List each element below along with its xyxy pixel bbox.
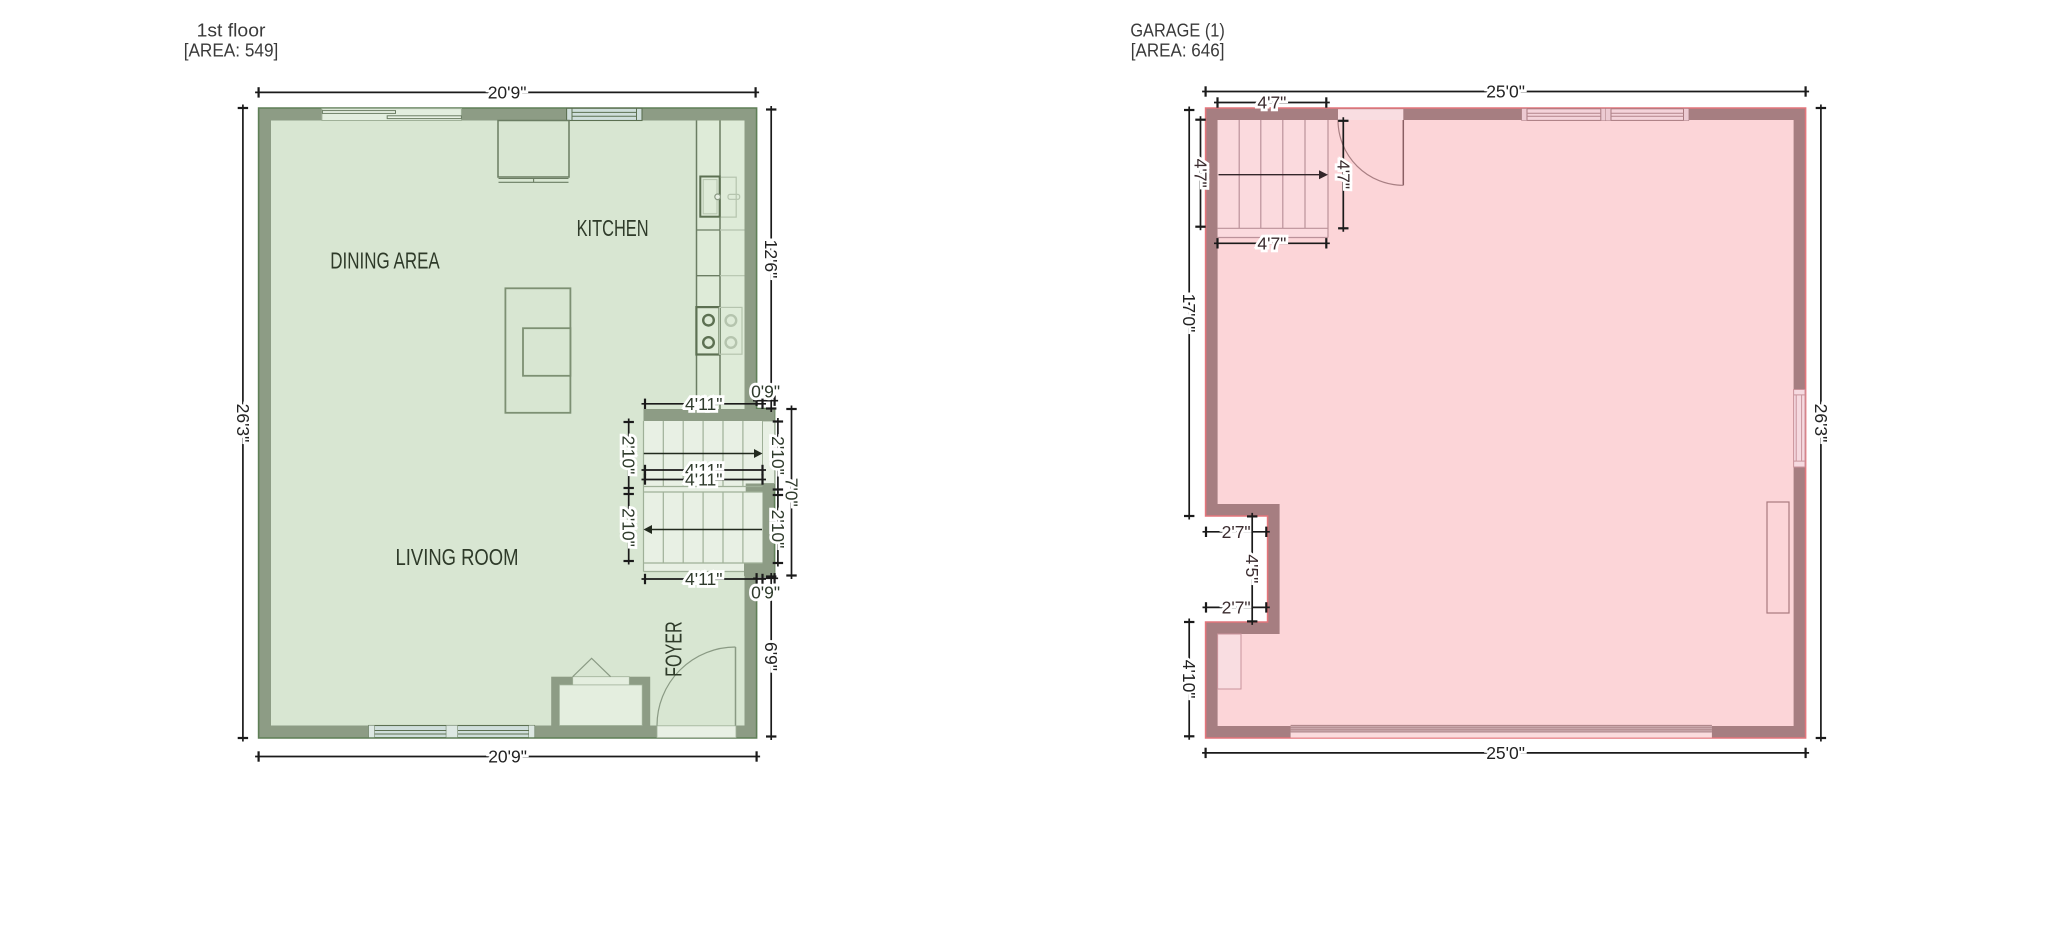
- svg-text:17'0": 17'0": [1179, 294, 1199, 333]
- svg-text:2'10": 2'10": [619, 436, 639, 475]
- svg-text:20'9": 20'9": [488, 747, 527, 767]
- svg-text:25'0": 25'0": [1486, 743, 1525, 763]
- svg-text:12'6": 12'6": [761, 240, 781, 279]
- svg-text:7'0": 7'0": [782, 478, 802, 507]
- svg-text:1st floor: 1st floor: [197, 21, 266, 41]
- svg-text:2'7": 2'7": [1222, 522, 1251, 542]
- svg-text:4'7": 4'7": [1333, 160, 1353, 189]
- svg-text:4'11": 4'11": [685, 470, 722, 490]
- svg-text:25'0": 25'0": [1486, 82, 1525, 102]
- svg-text:LIVING ROOM: LIVING ROOM: [396, 544, 519, 570]
- svg-text:2'10": 2'10": [768, 436, 788, 475]
- svg-text:4'5": 4'5": [1242, 554, 1262, 583]
- svg-text:4'7": 4'7": [1257, 93, 1286, 113]
- svg-text:KITCHEN: KITCHEN: [577, 215, 649, 241]
- svg-text:GARAGE (1): GARAGE (1): [1130, 21, 1225, 41]
- svg-text:4'11": 4'11": [685, 569, 722, 589]
- svg-text:6'9": 6'9": [761, 642, 781, 671]
- svg-text:4'10": 4'10": [1179, 660, 1199, 699]
- svg-text:4'7": 4'7": [1257, 233, 1286, 253]
- svg-text:2'10": 2'10": [768, 510, 788, 549]
- svg-text:26'3": 26'3": [233, 404, 253, 443]
- svg-text:2'7": 2'7": [1222, 597, 1251, 617]
- svg-text:FOYER: FOYER: [660, 621, 686, 677]
- svg-text:26'3": 26'3": [1811, 404, 1831, 443]
- svg-text:[AREA: 549]: [AREA: 549]: [184, 40, 279, 60]
- svg-text:0'9": 0'9": [751, 583, 780, 603]
- svg-text:[AREA: 646]: [AREA: 646]: [1131, 40, 1225, 60]
- svg-text:20'9": 20'9": [488, 82, 527, 102]
- svg-text:0'9": 0'9": [751, 381, 780, 401]
- svg-text:DINING AREA: DINING AREA: [330, 248, 440, 274]
- svg-text:2'10": 2'10": [619, 508, 639, 547]
- svg-text:4'7": 4'7": [1191, 159, 1211, 188]
- svg-text:4'11": 4'11": [685, 394, 722, 414]
